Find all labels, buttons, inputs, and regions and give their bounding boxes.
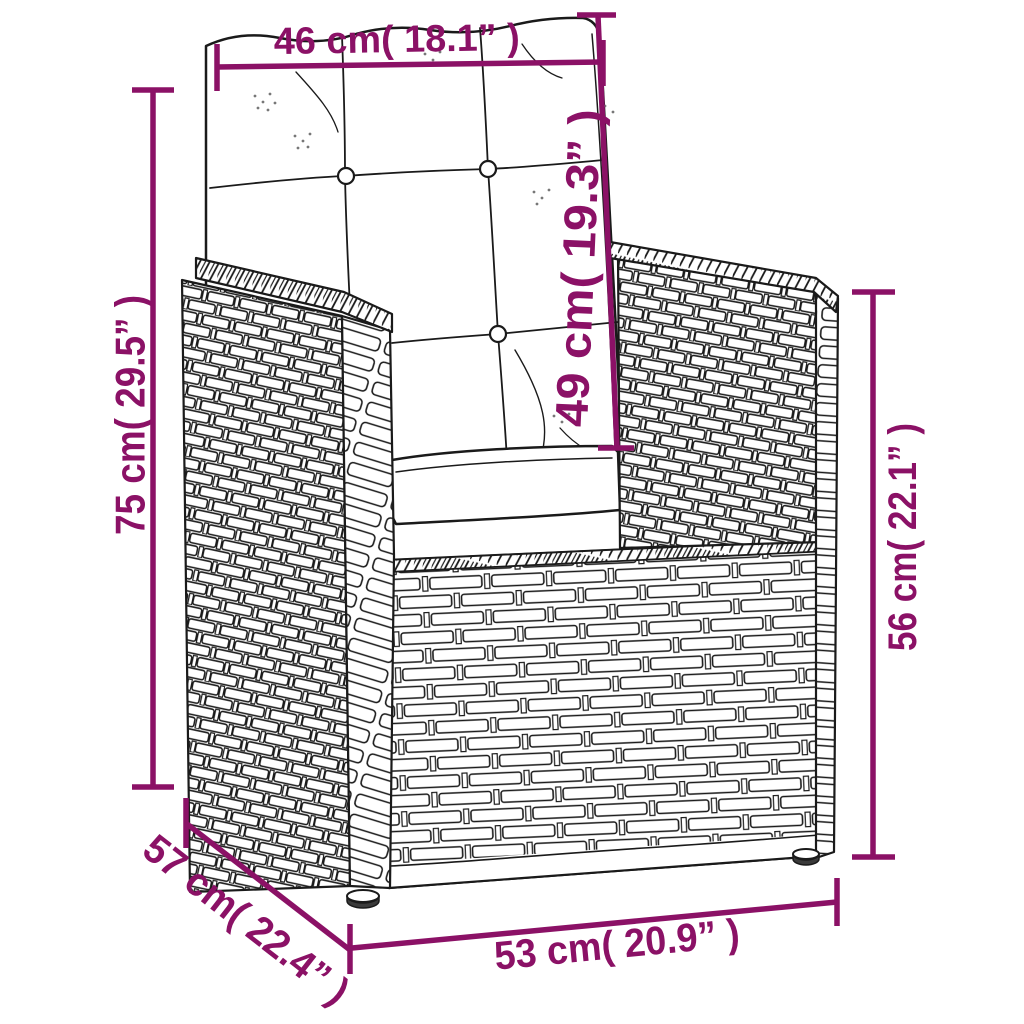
dimension-label-armrest-height: 56 cm( 22.1” ) — [881, 423, 925, 651]
tufting-button — [338, 168, 354, 184]
dimension-total-height: 75 cm( 29.5” ) — [107, 90, 175, 787]
left-armrest — [182, 258, 394, 892]
tufting-button — [480, 161, 496, 177]
tufting-button — [490, 326, 506, 342]
armchair-illustration — [182, 18, 838, 908]
right-armrest-front — [618, 254, 822, 548]
left-armrest-front — [182, 280, 350, 892]
dimension-label-back-cushion-width: 46 cm( 18.1” ) — [273, 17, 520, 63]
dimension-armrest-height: 56 cm( 22.1” ) — [852, 292, 925, 857]
dimension-label-total-height: 75 cm( 29.5” ) — [107, 295, 154, 535]
dimension-seat-width: 53 cm( 20.9” ) — [352, 878, 837, 979]
dimension-diagram: 46 cm( 18.1” ) 49 cm( 19.3” ) 75 cm( 29.… — [0, 0, 1024, 1024]
seat-cushion — [392, 446, 620, 524]
right-side-panel — [816, 288, 838, 858]
base-panel — [388, 540, 830, 888]
foot-right — [793, 849, 819, 865]
armchair-diagram-canvas: 46 cm( 18.1” ) 49 cm( 19.3” ) 75 cm( 29.… — [0, 0, 1024, 1024]
foot-left — [347, 890, 379, 908]
left-armrest-side — [342, 316, 394, 888]
